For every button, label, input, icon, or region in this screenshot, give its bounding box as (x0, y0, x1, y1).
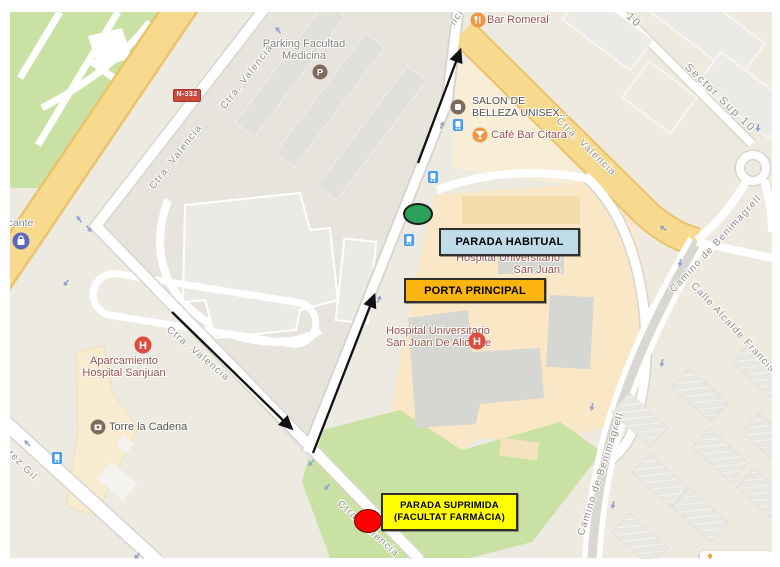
hospital-icon[interactable]: H (468, 332, 486, 355)
hospital-icon[interactable]: H (134, 336, 152, 359)
parking-icon[interactable]: P (312, 64, 328, 85)
bus-stop-icon[interactable] (428, 170, 438, 188)
landmark-icon[interactable] (90, 419, 106, 440)
beauty-salon-icon[interactable] (450, 99, 466, 120)
poi-label-salon-belleza[interactable]: SALON DE BELLEZA UNISEX... (472, 95, 568, 119)
porta-principal-label: PORTA PRINCIPAL (404, 278, 546, 303)
bar-icon[interactable] (472, 127, 488, 148)
map-canvas[interactable] (0, 0, 780, 567)
map-screenshot: Ctra. Valencia Ctra. Valencia ncia Ctra.… (0, 0, 780, 567)
svg-text:P: P (317, 68, 324, 79)
n332-road-shield: N-332 (173, 89, 201, 102)
svg-text:H: H (473, 336, 481, 348)
poi-label-aparcamiento-hospital[interactable]: Aparcamiento Hospital Sanjuan (82, 355, 165, 379)
margin-right (772, 0, 780, 567)
poi-label-cafe-bar-citara[interactable]: Café Bar Citara (491, 129, 567, 141)
poi-label-parking-facultad[interactable]: Parking Facultad Medicina (263, 38, 346, 62)
bus-stop-icon[interactable] (453, 118, 463, 136)
shopping-icon[interactable] (12, 232, 30, 255)
parada-habitual-label: PARADA HABITUAL (439, 228, 580, 256)
margin-bottom (0, 559, 780, 567)
poi-label-bar-romeral[interactable]: Bar Romeral (487, 14, 549, 26)
margin-top (0, 0, 780, 12)
removed-stop-marker (354, 509, 382, 533)
parada-suprimida-label: PARADA SUPRIMIDA (FACULTAT FARMÀCIA) (381, 493, 518, 531)
poi-label-torre-la-cadena[interactable]: Torre la Cadena (109, 421, 187, 433)
usual-stop-marker (403, 203, 433, 225)
margin-left (0, 0, 10, 567)
svg-text:H: H (139, 340, 147, 352)
bus-stop-icon[interactable] (404, 233, 414, 251)
bus-stop-icon[interactable] (52, 451, 62, 469)
restaurant-icon[interactable] (470, 12, 486, 33)
